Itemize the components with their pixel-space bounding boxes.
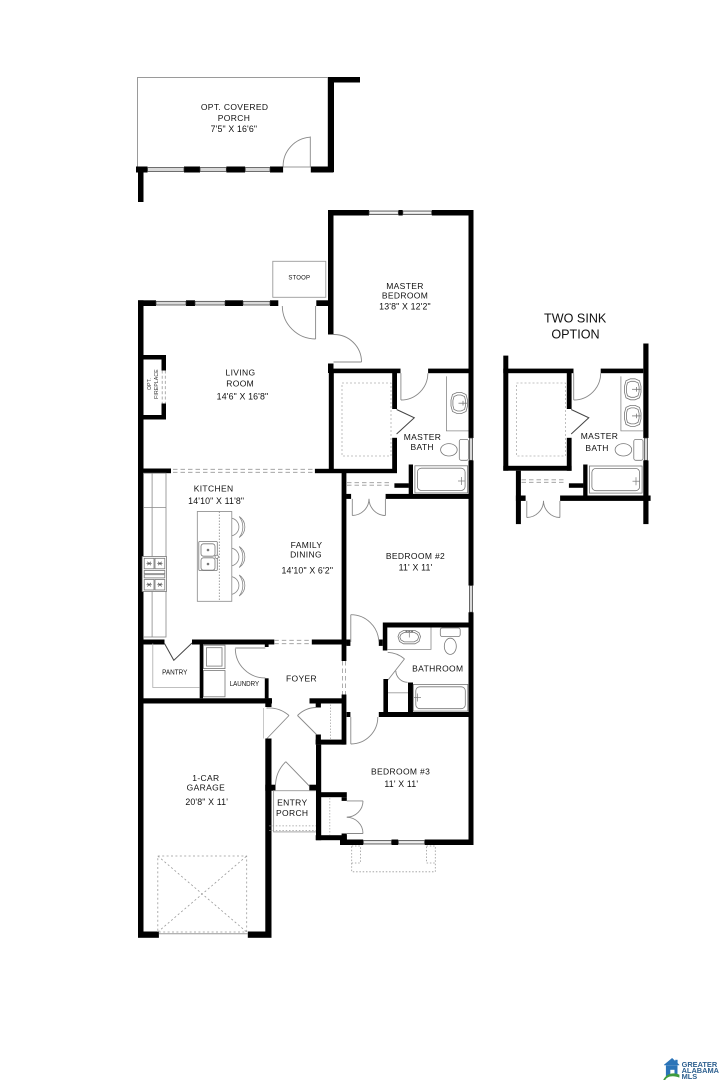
svg-text:MASTER: MASTER xyxy=(581,431,619,441)
svg-text:14'10" X 6'2": 14'10" X 6'2" xyxy=(281,566,333,576)
svg-text:7'5" X 16'6": 7'5" X 16'6" xyxy=(211,124,258,134)
svg-text:20'8" X 11': 20'8" X 11' xyxy=(185,797,228,807)
svg-text:13'8" X 12'2": 13'8" X 12'2" xyxy=(379,302,431,312)
svg-text:FOYER: FOYER xyxy=(286,673,317,683)
svg-text:FAMILY: FAMILY xyxy=(291,540,323,550)
svg-text:BATH: BATH xyxy=(585,443,608,453)
svg-text:MASTER: MASTER xyxy=(404,432,442,442)
svg-text:LIVING: LIVING xyxy=(226,367,256,377)
svg-text:FIREPLACE: FIREPLACE xyxy=(154,369,160,399)
svg-text:PORCH: PORCH xyxy=(218,113,250,123)
svg-text:11' X 11': 11' X 11' xyxy=(384,779,418,789)
svg-text:TWO SINK: TWO SINK xyxy=(544,312,607,326)
svg-text:PANTRY: PANTRY xyxy=(162,668,187,677)
svg-text:ENTRY: ENTRY xyxy=(277,797,307,807)
svg-text:LAUNDRY: LAUNDRY xyxy=(230,679,259,688)
svg-text:BEDROOM: BEDROOM xyxy=(382,291,428,301)
svg-text:BATHROOM: BATHROOM xyxy=(412,663,463,673)
svg-text:1-CAR: 1-CAR xyxy=(192,773,219,783)
svg-text:OPTION: OPTION xyxy=(551,328,599,342)
svg-text:BEDROOM #2: BEDROOM #2 xyxy=(386,551,445,561)
svg-text:11' X 11': 11' X 11' xyxy=(399,562,433,572)
svg-text:PORCH: PORCH xyxy=(276,808,308,818)
svg-text:DINING: DINING xyxy=(290,550,322,560)
svg-text:14'10" X 11'8": 14'10" X 11'8" xyxy=(188,496,244,506)
svg-text:BATH: BATH xyxy=(410,442,433,452)
svg-text:14'6" X 16'8": 14'6" X 16'8" xyxy=(217,391,269,401)
svg-text:ROOM: ROOM xyxy=(226,378,254,388)
svg-text:BEDROOM #3: BEDROOM #3 xyxy=(371,766,430,776)
svg-text:OPT. COVERED: OPT. COVERED xyxy=(201,102,269,112)
svg-text:GARAGE: GARAGE xyxy=(187,783,225,793)
svg-text:STOOP: STOOP xyxy=(288,276,310,282)
svg-text:KITCHEN: KITCHEN xyxy=(194,484,234,494)
svg-text:MLS: MLS xyxy=(682,1072,698,1080)
svg-text:OPT.: OPT. xyxy=(147,378,153,390)
